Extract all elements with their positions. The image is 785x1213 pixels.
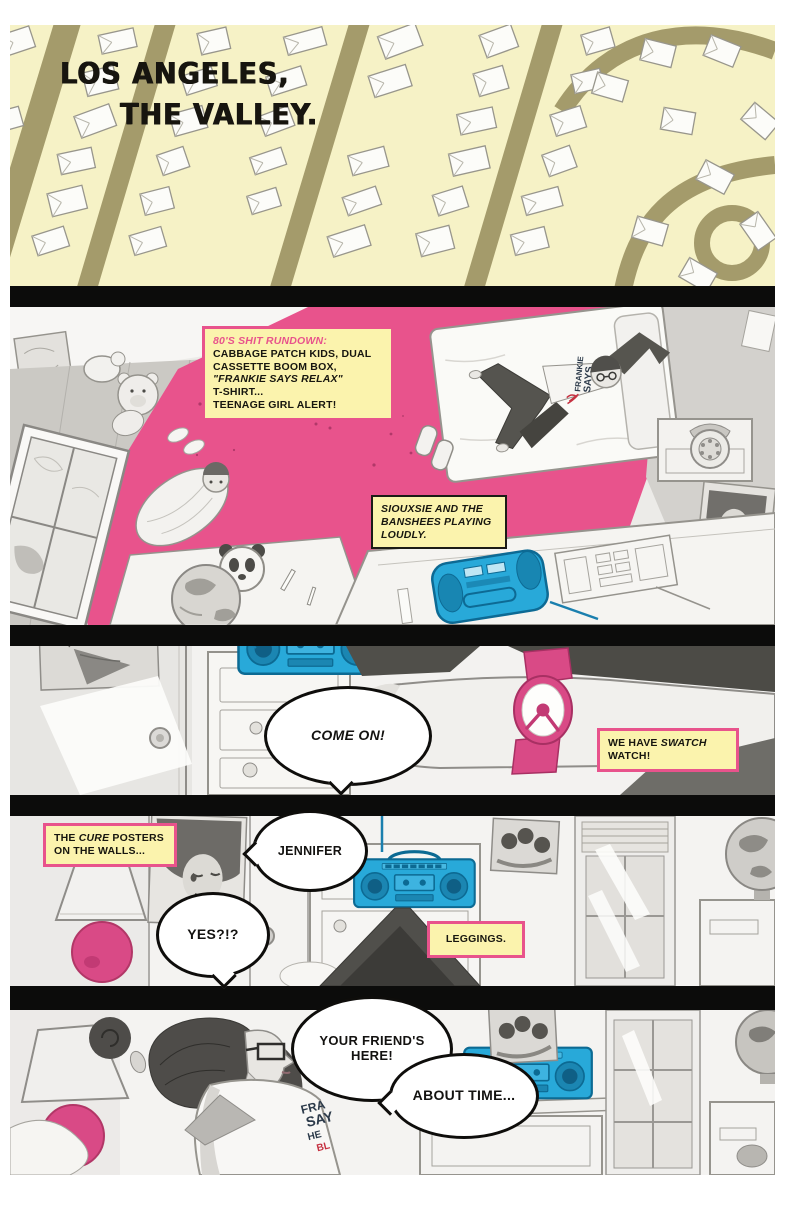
location-title-line1: LOS ANGELES,: [60, 54, 318, 95]
speech-text: ABOUT TIME...: [413, 1088, 516, 1104]
caption-text: WATCH!: [608, 750, 650, 762]
reaching-hand: [737, 1145, 767, 1167]
caption-leggings: LEGGINGS.: [427, 921, 525, 958]
caption-rundown-line: TEENAGE GIRL ALERT!: [213, 399, 383, 412]
caption-rundown-line: CABBAGE PATCH KIDS, DUAL: [213, 348, 383, 361]
speech-bubble-jennifer: JENNIFER: [252, 810, 368, 892]
band-poster: [491, 818, 560, 873]
hair-curl: [89, 1017, 131, 1059]
panel-gutter: [10, 795, 775, 816]
caption-rundown: 80'S SHIT RUNDOWN: CABBAGE PATCH KIDS, D…: [202, 326, 394, 421]
globe: [172, 565, 240, 625]
caption-rundown-line: "FRANKIE SAYS RELAX": [213, 373, 383, 386]
bed-with-girl: FRANKIE SAYS: [429, 307, 682, 483]
speech-bubble-about-time: ABOUT TIME...: [389, 1053, 539, 1139]
speech-text: COME ON!: [311, 728, 385, 744]
caption-cure-posters: THE CURE POSTERS ON THE WALLS...: [43, 823, 177, 867]
pink-lamp-base: [72, 922, 132, 982]
window: [575, 816, 675, 986]
panel-gutter: [10, 625, 775, 646]
speech-bubble-come-on: COME ON!: [264, 686, 432, 786]
location-title-line2: THE VALLEY.: [120, 95, 318, 136]
comic-page: LOS ANGELES, THE VALLEY.: [0, 0, 785, 1213]
caption-rundown-line: CASSETTE BOOM BOX,: [213, 361, 383, 374]
speech-bubble-yes: YES?!?: [156, 892, 270, 978]
caption-swatch: WE HAVE SWATCH WATCH!: [597, 728, 739, 772]
caption-brand-text: SWATCH: [661, 737, 707, 749]
caption-rundown-heading: 80'S SHIT RUNDOWN:: [213, 335, 383, 348]
caption-rundown-line: T-SHIRT...: [213, 386, 383, 399]
band-poster: [489, 1010, 558, 1064]
caption-band-text: CURE: [79, 832, 110, 844]
bedroom-door: [10, 646, 192, 795]
caption-text: THE: [54, 832, 79, 844]
nightstand-with-phone: [658, 419, 752, 481]
window: [606, 1010, 700, 1175]
speech-text: YES?!?: [187, 927, 239, 943]
location-title: LOS ANGELES, THE VALLEY.: [60, 54, 318, 135]
boombox: [354, 852, 475, 907]
speech-text: YOUR FRIEND'S HERE!: [308, 1034, 436, 1063]
caption-music: SIOUXSIE AND THE BANSHEES PLAYING LOUDLY…: [371, 495, 507, 549]
panel-gutter: [10, 286, 775, 307]
caption-text: WE HAVE: [608, 737, 661, 749]
speech-text: JENNIFER: [278, 844, 342, 858]
